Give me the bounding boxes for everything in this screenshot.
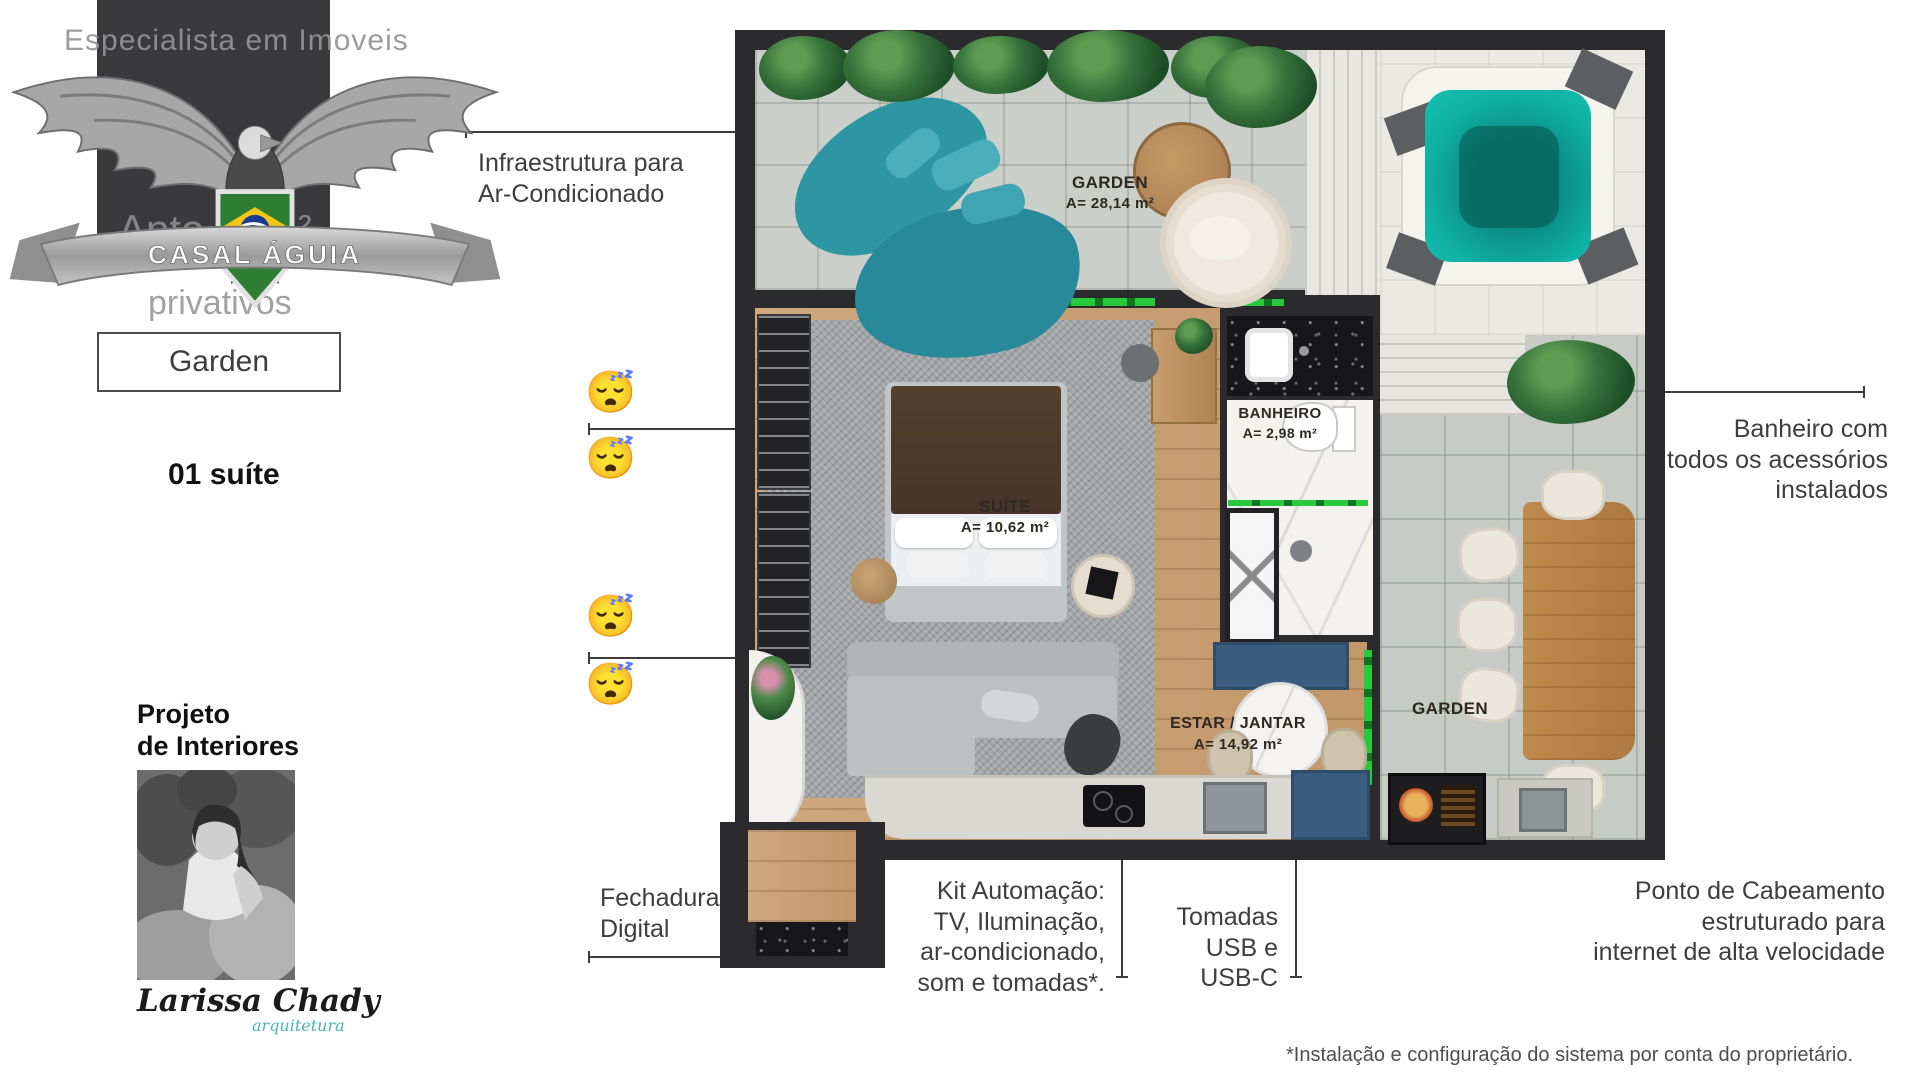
jacuzzi	[1403, 68, 1613, 284]
entrance-floor	[748, 830, 856, 922]
led-strip-shower	[1228, 500, 1368, 506]
shower-head	[1290, 540, 1312, 562]
callout-line-banheiro	[1665, 391, 1865, 393]
watermark-especialista: Especialista em Imoveis	[64, 24, 409, 58]
bed-pillow-4	[985, 552, 1047, 578]
burner-2	[1115, 805, 1133, 823]
callout-fechadura: Fechadura Digital	[600, 883, 720, 944]
bed-duvet	[891, 386, 1061, 514]
desk-chair	[1121, 344, 1159, 382]
wardrobe-upper	[757, 314, 811, 490]
bbq-pizza	[1399, 788, 1433, 822]
garden-sink	[1519, 788, 1567, 832]
bathroom-label: BANHEIRO A= 2,98 m²	[1224, 404, 1336, 442]
sleep-emoji-3: 😴	[585, 596, 636, 637]
ribbon-text: CASAL ÁGUIA	[148, 240, 362, 270]
kitchen-sink	[1203, 782, 1267, 834]
cream-sofa-cushion	[1190, 216, 1250, 260]
callout-kit: Kit Automação: TV, Iluminação, ar-condic…	[890, 876, 1105, 998]
suite-label: SUÍTE A= 10,62 m²	[925, 496, 1085, 538]
footnote: *Instalação e configuração do sistema po…	[1286, 1044, 1853, 1067]
callout-line-kit	[1121, 860, 1123, 978]
entrance-vestibule	[720, 822, 885, 968]
cooktop	[1083, 785, 1145, 827]
sleep-emoji-1: 😴	[585, 372, 636, 413]
bathroom-sink	[1245, 328, 1293, 382]
estar-label: ESTAR / JANTAR A= 14,92 m²	[1159, 714, 1317, 754]
bathroom-vanity	[1227, 316, 1373, 396]
eagle-logo: CASAL ÁGUIA	[0, 28, 510, 320]
architect-photo	[137, 770, 295, 980]
dining-table	[1523, 502, 1635, 760]
bed-pillow-3	[907, 552, 969, 578]
garden-right-label: GARDEN	[1395, 698, 1505, 720]
bathroom-faucet	[1299, 346, 1309, 356]
dining-chair-2	[1457, 598, 1517, 652]
unit-features: 01 suíte	[168, 458, 280, 492]
floor-plan: BANHEIRO A= 2,98 m² GARDEN A= 28,14 m² S…	[735, 30, 1665, 860]
burner-1	[1093, 791, 1113, 811]
garden-sink-counter	[1497, 778, 1593, 838]
callout-line-sleep-lower	[588, 657, 737, 659]
jacuzzi-water	[1425, 90, 1591, 262]
kitchen-island-blue	[1291, 770, 1370, 840]
wardrobe-lower	[757, 492, 811, 668]
architect-signature: Larissa Chady	[137, 983, 380, 1019]
jacuzzi-seat	[1459, 126, 1559, 228]
sleep-emoji-2: 😴	[585, 438, 636, 479]
bbq-grill	[1441, 786, 1475, 826]
nightstand-tray	[1085, 566, 1118, 599]
callout-line-tomadas	[1295, 860, 1297, 978]
architect-signature-sub: arquitetura	[252, 1016, 345, 1035]
shower-door	[1225, 508, 1279, 644]
callout-line-sleep-upper	[588, 428, 737, 430]
garden-top-label: GARDEN A= 28,14 m²	[1040, 172, 1180, 214]
bbq-counter	[1388, 773, 1486, 845]
suite-sofa	[847, 642, 1119, 678]
unit-type-box: Garden	[97, 332, 341, 392]
entrance-doormat	[756, 922, 848, 956]
interiors-heading: Projeto de Interiores	[137, 698, 299, 763]
suite-sofa-chaise	[847, 676, 975, 776]
dining-chair-head-top	[1541, 470, 1605, 520]
callout-tomadas: Tomadas USB e USB-C	[1128, 902, 1278, 994]
nightstand-left	[851, 558, 897, 604]
garden-steps	[1380, 335, 1525, 415]
sleep-emoji-4: 😴	[585, 664, 636, 705]
callout-cabeamento: Ponto de Cabeamento estruturado para int…	[1555, 876, 1885, 968]
callout-line-fechadura	[588, 956, 722, 958]
nightstand-right	[1071, 554, 1135, 618]
bathroom: BANHEIRO A= 2,98 m²	[1220, 308, 1380, 642]
